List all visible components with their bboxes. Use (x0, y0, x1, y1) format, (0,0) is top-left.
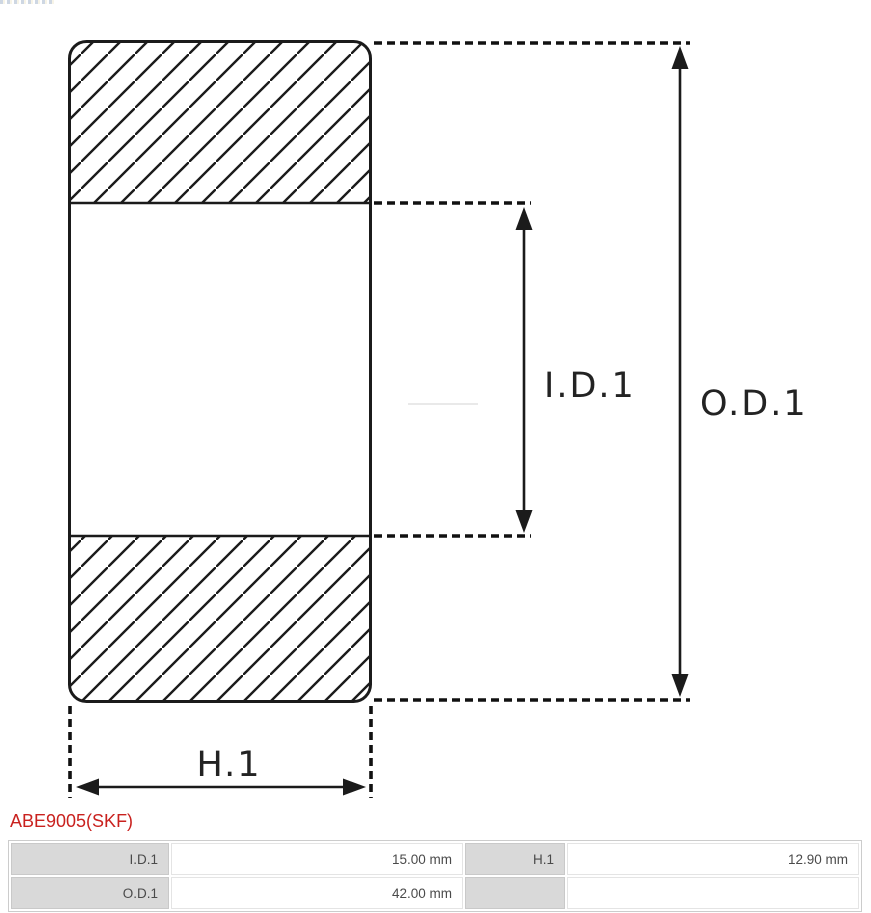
spec-value-empty (567, 877, 859, 909)
spec-value-id: 15.00 mm (171, 843, 463, 875)
id-label: I.D.1 (544, 366, 636, 406)
part-number-link[interactable]: ABE9005(SKF) (10, 811, 133, 832)
bearing-drawing-page: I.D.1 O.D.1 H.1 ABE9005(SKF) I.D.1 15.00… (0, 0, 871, 913)
h-label: H.1 (196, 745, 261, 785)
id-arrowhead-up-icon (516, 207, 533, 230)
outer-ring-bottom-hatch (70, 536, 371, 702)
id-arrowhead-down-icon (516, 510, 533, 533)
table-row: O.D.1 42.00 mm (11, 877, 859, 909)
h-arrowhead-right-icon (343, 779, 366, 796)
table-row: I.D.1 15.00 mm H.1 12.90 mm (11, 843, 859, 875)
spec-label-empty (465, 877, 565, 909)
bearing-body (70, 42, 479, 703)
od-label: O.D.1 (700, 384, 808, 424)
id-dimension: I.D.1 (516, 207, 636, 533)
spec-label-id: I.D.1 (11, 843, 169, 875)
od-dimension: O.D.1 (672, 46, 808, 697)
spec-value-od: 42.00 mm (171, 877, 463, 909)
od-arrowhead-down-icon (672, 674, 689, 697)
h-dimension: H.1 (76, 745, 366, 796)
spec-label-h: H.1 (465, 843, 565, 875)
h-arrowhead-left-icon (76, 779, 99, 796)
outer-ring-top-hatch (70, 42, 371, 204)
spec-value-h: 12.90 mm (567, 843, 859, 875)
bearing-cross-section-diagram: I.D.1 O.D.1 H.1 (0, 0, 871, 810)
spec-label-od: O.D.1 (11, 877, 169, 909)
spec-table: I.D.1 15.00 mm H.1 12.90 mm O.D.1 42.00 … (8, 840, 862, 912)
od-arrowhead-up-icon (672, 46, 689, 69)
